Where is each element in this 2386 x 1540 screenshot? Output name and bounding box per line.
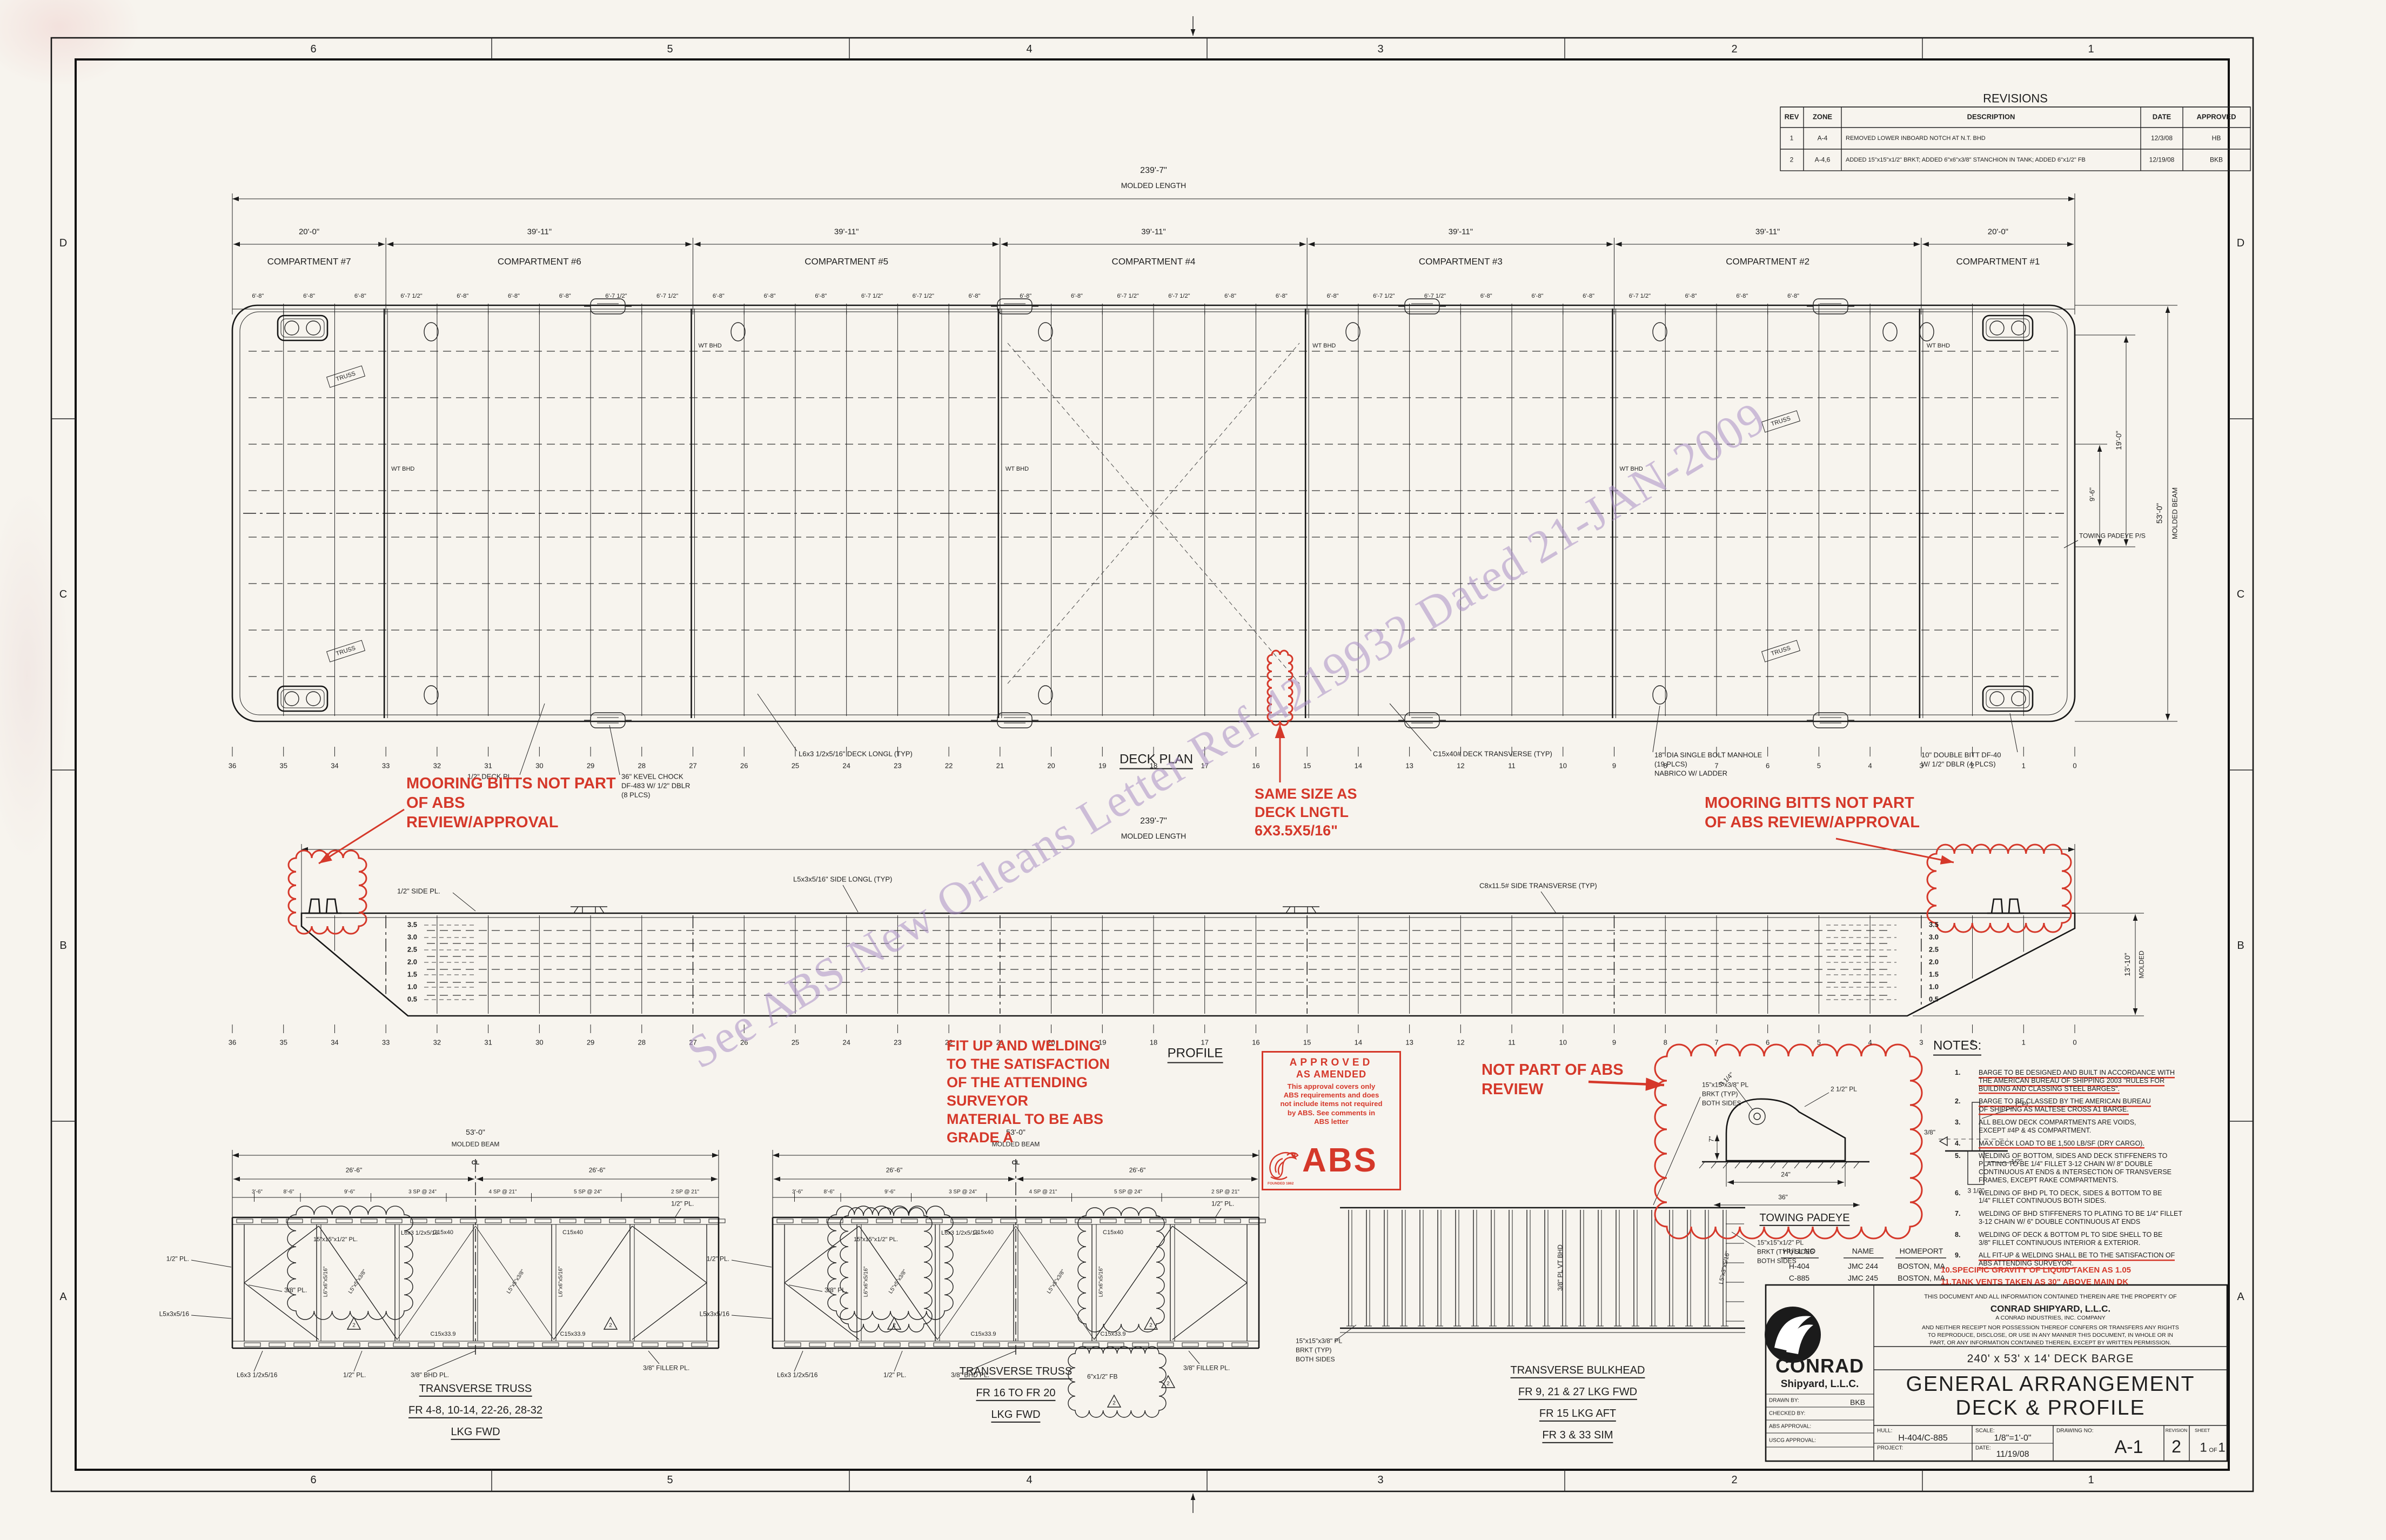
draft-mark-right: 0.5 (1929, 996, 1939, 1004)
profile-frame-number: 29 (587, 1039, 594, 1047)
truss-spacing-dim: 5 SP @ 24" (574, 1189, 602, 1195)
frame-spacing-dim: 6'-8" (1787, 293, 1799, 299)
titleblock-title-line1: GENERAL ARRANGEMENT (1906, 1372, 2195, 1396)
compartment-name: COMPARTMENT #2 (1726, 256, 1809, 266)
truss-filler-pl-label: 3/8" FILLER PL. (643, 1364, 689, 1371)
zone-number-bottom: 2 (1731, 1474, 1737, 1486)
wt-bhd-label: WT BHD (391, 466, 414, 472)
bulkhead-bracket-note-right: 15"x15"x1/2" PL (1757, 1239, 1804, 1246)
draft-mark-right: 3.5 (1929, 921, 1939, 929)
profile-frame-number: 26 (740, 1039, 748, 1047)
profile-frame-number: 6 (1766, 1039, 1770, 1047)
bulkhead-bracket-note-top: BOTH SIDES (1702, 1100, 1741, 1107)
frame-spacing-dim: 6'-8" (1327, 293, 1339, 299)
field-sheet-of: OF (2209, 1447, 2217, 1454)
frame-spacing-dim: 6'-8" (815, 293, 827, 299)
ann-mooring-left-line: MOORING BITTS NOT PART (406, 774, 616, 793)
annotation-fit-up-welding: FIT UP AND WELDINGTO THE SATISFACTIONOF … (947, 1036, 1110, 1147)
compartment-dim: 20'-0" (1988, 228, 2008, 237)
truss-top-chord-label: C15x40 (1103, 1229, 1123, 1236)
note-number: 2. (1955, 1097, 1960, 1105)
truss-spacing-dim: 5 SP @ 24" (1114, 1189, 1142, 1195)
truss-diagonal-label: L5"x5"x3/8" (1046, 1269, 1067, 1295)
truss-cl: CL (472, 1160, 480, 1166)
plan-dim-9-6: 9'-6" (2089, 487, 2097, 501)
plan-length-label: MOLDED LENGTH (1121, 182, 1187, 190)
truss-bottom-longl-label: L6x3 1/2x5/16 (777, 1371, 817, 1378)
truss-spacing-dim: 9'-6" (884, 1189, 895, 1195)
bulkhead-caption: FR 9, 21 & 27 LKG FWD (1518, 1386, 1637, 1400)
revision-zone: A-4,6 (1815, 156, 1831, 163)
frame-spacing-dim: 6'-8" (1071, 293, 1083, 299)
compartment-dim: 39'-11" (1141, 228, 1165, 237)
hull-table-header: NAME (1852, 1247, 1874, 1256)
zone-number-top: 1 (2088, 43, 2094, 55)
profile-frame-number: 4 (1868, 1039, 1872, 1047)
plan-dim-19: 19'-0" (2115, 431, 2123, 450)
field-checked-by-label: CHECKED BY: (1769, 1410, 1805, 1416)
padeye-dim-24: 24" (1781, 1171, 1791, 1178)
field-abs-approval-label: ABS APPROVAL: (1769, 1423, 1811, 1429)
draft-mark-right: 1.5 (1929, 971, 1939, 979)
zone-letter-left: D (59, 237, 67, 249)
revision-description: ADDED 15"x15"x1/2" BRKT; ADDED 6"x6"x3/8… (1846, 157, 2086, 163)
truss-longl-label: L6x3 1/2x5/16 (941, 1230, 978, 1236)
truss-label: TRUSS (335, 370, 356, 383)
profile-frame-number: 15 (1303, 1039, 1311, 1047)
note-line: WELDING OF DECK & BOTTOM PL TO SIDE SHEL… (1979, 1231, 2162, 1239)
revision-approved: HB (2212, 135, 2221, 142)
note-line: BARGE TO BE DESIGNED AND BUILT IN ACCORD… (1979, 1069, 2175, 1077)
plan-frame-number: 26 (740, 762, 748, 771)
towing-padeye-ps-label: TOWING PADEYE P/S (2079, 532, 2146, 539)
revision-triangle: 2 (609, 1322, 612, 1328)
profile-frame-number: 32 (433, 1039, 441, 1047)
frame-spacing-dim: 6'-7 1/2" (1424, 293, 1446, 299)
profile-frame-number: 28 (638, 1039, 646, 1047)
compartment-dim: 39'-11" (1449, 228, 1473, 237)
truss-gusset-label: 3/8" PL. (825, 1287, 847, 1294)
titleblock-title-line2: DECK & PROFILE (1956, 1396, 2146, 1420)
frame-spacing-dim: 6'-8" (1276, 293, 1288, 299)
note-line: PLATING TO BE 1/4" FILLET 3-12 CHAIN W/ … (1979, 1160, 2153, 1168)
truss-spacing-dim: 2 SP @ 21" (1211, 1189, 1239, 1195)
wt-bhd-label: WT BHD (1006, 466, 1029, 472)
field-scale-value: 1/8"=1'-0" (1994, 1434, 2031, 1443)
profile-length-label: MOLDED LENGTH (1121, 832, 1187, 841)
truss-vertical-label: L6"x6"x5/16" (558, 1267, 564, 1297)
callout-kevel-chock: DF-483 W/ 1/2" DBLR (621, 782, 690, 791)
stamp-as-amended: AS AMENDED (1263, 1069, 1399, 1080)
frame-spacing-dim: 6'-8" (559, 293, 571, 299)
note-number: 9. (1955, 1251, 1960, 1259)
note-line: EXCEPT #4P & 4S COMPARTMENT. (1979, 1127, 2091, 1135)
truss-longl-label: L6x3 1/2x5/16 (401, 1230, 438, 1236)
callout-deck-longl: L6x3 1/2x5/16" DECK LONGL (TYP) (799, 751, 913, 759)
truss-label: TRUSS (335, 645, 356, 657)
compartment-name: COMPARTMENT #5 (805, 256, 888, 266)
truss-side-pl-label: 1/2" PL. (707, 1255, 729, 1262)
note-red-line: 10.SPECIFIC GRAVITY OF LIQUID TAKEN AS 1… (1941, 1267, 2131, 1275)
zone-letter-right: A (2237, 1291, 2244, 1303)
plan-frame-number: 34 (331, 762, 338, 771)
zone-letter-left: C (59, 588, 67, 600)
truss-top-pl-label: 1/2" PL. (1211, 1200, 1234, 1207)
plan-frame-number: 16 (1252, 762, 1259, 771)
frame-spacing-dim: 6'-8" (354, 293, 366, 299)
frame-spacing-dim: 6'-8" (1480, 293, 1492, 299)
abs-logo-word: ABS (1302, 1143, 1378, 1178)
ann-mooring-right-line: MOORING BITTS NOT PART (1705, 793, 1920, 813)
titleblock-property-line: A CONRAD INDUSTRIES, INC. COMPANY (1995, 1315, 2105, 1322)
stamp-approved: APPROVED (1263, 1057, 1399, 1069)
zone-letter-right: D (2237, 237, 2244, 249)
truss-spacing-dim: 3 SP @ 24" (949, 1189, 977, 1195)
stamp-body-line: by ABS. See comments in (1263, 1109, 1399, 1117)
abs-approval-stamp: APPROVED AS AMENDED This approval covers… (1262, 1051, 1401, 1190)
revision-triangle: 2 (352, 1322, 356, 1328)
abs-founded-text: FOUNDED 1862 (1268, 1182, 1293, 1186)
plan-frame-number: 14 (1355, 762, 1362, 771)
field-date-label: DATE: (1975, 1445, 1991, 1451)
profile-frame-number: 18 (1150, 1039, 1157, 1047)
truss-spacing-dim: 3'-6" (252, 1189, 263, 1195)
revision-description: REMOVED LOWER INBOARD NOTCH AT N.T. BHD (1846, 135, 1986, 142)
bulkhead-caption: TRANSVERSE BULKHEAD (1511, 1364, 1645, 1378)
truss-vertical-label: L6"x6"x5/16" (323, 1267, 329, 1297)
truss-gusset-label: 3/8" PL. (284, 1287, 307, 1294)
plan-frame-number: 22 (945, 762, 953, 771)
zone-number-bottom: 5 (667, 1474, 673, 1486)
truss-caption: FR 4-8, 10-14, 22-26, 28-32 (408, 1404, 542, 1418)
profile-frame-number: 16 (1252, 1039, 1259, 1047)
field-drawn-by-value: BKB (1850, 1398, 1865, 1407)
callout-side-transverse: C8x11.5# SIDE TRANSVERSE (TYP) (1479, 882, 1597, 890)
zone-letter-right: C (2237, 588, 2244, 600)
note-number: 6. (1955, 1189, 1960, 1197)
truss-bottom-chord-label: C15x33.9 (430, 1331, 455, 1337)
draft-mark-left: 1.0 (407, 983, 417, 992)
annotation-mooring-bitts-left: MOORING BITTS NOT PARTOF ABSREVIEW/APPRO… (406, 774, 616, 832)
deck-plan-title: DECK PLAN (1120, 753, 1193, 769)
ann-mooring-right-line: OF ABS REVIEW/APPROVAL (1705, 813, 1920, 832)
field-scale-label: SCALE: (1975, 1428, 1995, 1434)
plan-frame-number: 19 (1098, 762, 1106, 771)
truss-half-dim: 26'-6" (589, 1167, 606, 1174)
truss-beam-dim: 53'-0" (466, 1128, 485, 1137)
truss-diagonal-label: L5"x5"x3/8" (888, 1269, 908, 1295)
frame-spacing-dim: 6'-7 1/2" (605, 293, 627, 299)
truss-bhd-pl-label: 3/8" BHD PL. (411, 1371, 449, 1378)
plan-frame-number: 30 (535, 762, 543, 771)
plan-frame-number: 0 (2073, 762, 2076, 771)
plan-frame-number: 5 (1817, 762, 1821, 771)
frame-spacing-dim: 6'-8" (252, 293, 264, 299)
zone-number-top: 4 (1026, 43, 1032, 55)
conrad-logo-name: CONRAD (1775, 1355, 1864, 1377)
field-hull-value: H-404/C-885 (1898, 1434, 1948, 1443)
zone-number-bottom: 6 (310, 1474, 316, 1486)
bulkhead-bracket-note-left: BOTH SIDES (1296, 1356, 1335, 1363)
titleblock-property-line: TO REPRODUCE, DISCLOSE, OR USE IN ANY MA… (1928, 1333, 2173, 1339)
truss-side-pl-label: 1/2" PL. (166, 1255, 189, 1262)
revision-rev: 2 (1790, 156, 1794, 163)
compartment-dim: 39'-11" (527, 228, 552, 237)
note-line: THE AMERICAN BUREAU OF SHIPPING 2003 "RU… (1979, 1077, 2164, 1085)
truss-vertical-label: L6"x6"x5/16" (863, 1267, 869, 1297)
profile-frame-number: 27 (689, 1039, 696, 1047)
ann-mooring-left-line: REVIEW/APPROVAL (406, 813, 616, 832)
profile-frame-number: 34 (331, 1039, 338, 1047)
truss-caption: LKG FWD (451, 1426, 500, 1440)
profile-frame-number: 35 (279, 1039, 287, 1047)
hull-table-cell: JMC 245 (1848, 1274, 1878, 1283)
callout-kevel-chock: (8 PLCS) (621, 792, 650, 800)
callout-deck-transverse: C15x40# DECK TRANSVERSE (TYP) (1433, 751, 1552, 759)
truss-caption: LKG FWD (991, 1409, 1040, 1423)
revision-approved: BKB (2210, 156, 2223, 163)
truss-fb-label: 6"x1/2" FB (1087, 1373, 1118, 1380)
frame-spacing-dim: 6'-8" (1736, 293, 1748, 299)
plan-frame-number: 21 (996, 762, 1004, 771)
truss-label: TRUSS (1770, 415, 1791, 427)
stamp-body-line: ABS letter (1263, 1117, 1399, 1126)
plan-frame-number: 13 (1405, 762, 1413, 771)
truss-bottom-pl-label: 1/2" PL. (883, 1371, 906, 1378)
plan-frame-number: 17 (1201, 762, 1208, 771)
titleblock-property-line: THIS DOCUMENT AND ALL INFORMATION CONTAI… (1924, 1294, 2177, 1300)
truss-diagonal-label: L5"x5"x3/8" (347, 1269, 368, 1295)
plan-frame-number: 28 (638, 762, 646, 771)
plan-frame-number: 27 (689, 762, 696, 771)
wt-bhd-label: WT BHD (1927, 343, 1950, 349)
callout-side-longl: L5x3x5/16" SIDE LONGL (TYP) (793, 876, 892, 884)
frame-spacing-dim: 6'-8" (1020, 293, 1031, 299)
note-number: 7. (1955, 1210, 1960, 1217)
plan-frame-number: 12 (1457, 762, 1464, 771)
callout-double-bitt: W/ 1/2" DBLR (4 PLCS) (1921, 761, 1996, 769)
note-number: 3. (1955, 1119, 1960, 1126)
compartment-name: COMPARTMENT #4 (1112, 256, 1196, 266)
ann-fit-up-line: GRADE A (947, 1128, 1110, 1147)
field-drawn-by-label: DRAWN BY: (1769, 1397, 1799, 1403)
truss-bottom-longl-label: L6x3 1/2x5/16 (237, 1371, 277, 1378)
wt-bhd-label: WT BHD (1620, 466, 1643, 472)
plan-length-dim: 239'-7" (1140, 166, 1167, 176)
note-line: ALL FIT-UP & WELDING SHALL BE TO THE SAT… (1979, 1251, 2175, 1260)
hull-table-cell: H-404 (1789, 1262, 1809, 1271)
annotation-not-part-of-abs: NOT PART OF ABSREVIEW (1482, 1060, 1624, 1099)
profile-frame-number: 23 (894, 1039, 901, 1047)
truss-caption: TRANSVERSE TRUSS (419, 1383, 532, 1397)
zone-number-top: 3 (1377, 43, 1383, 55)
field-sheet-total: 1 (2218, 1441, 2225, 1456)
truss-spacing-dim: 3 SP @ 24" (408, 1189, 437, 1195)
compartment-name: COMPARTMENT #6 (498, 256, 581, 266)
truss-spacing-dim: 8'-6" (824, 1189, 835, 1195)
hull-table-cell: C-885 (1789, 1274, 1809, 1283)
revision-triangle: 2 (1149, 1322, 1152, 1328)
note-line: WELDING OF BHD STIFFENERS TO PLATING TO … (1979, 1210, 2182, 1218)
ann-mooring-left-line: OF ABS (406, 793, 616, 813)
profile-frame-number: 33 (382, 1039, 390, 1047)
revision-triangle: 2 (893, 1322, 896, 1328)
hull-table-cell: JMC 244 (1848, 1262, 1878, 1271)
frame-spacing-dim: 6'-7 1/2" (1629, 293, 1651, 299)
frame-spacing-dim: 6'-7 1/2" (656, 293, 678, 299)
frame-spacing-dim: 6'-7 1/2" (861, 293, 883, 299)
truss-bottom-chord-label: C15x33.9 (970, 1331, 996, 1337)
plan-frame-number: 32 (433, 762, 441, 771)
truss-bottom-pl-label: 1/2" PL. (343, 1371, 366, 1378)
bulkhead-caption: FR 15 LKG AFT (1539, 1408, 1616, 1422)
profile-frame-number: 24 (842, 1039, 850, 1047)
frame-spacing-dim: 6'-8" (508, 293, 520, 299)
frame-spacing-dim: 6'-8" (457, 293, 468, 299)
zone-number-top: 6 (310, 43, 316, 55)
draft-mark-left: 2.5 (407, 946, 417, 954)
truss-top-pl-label: 1/2" PL. (671, 1200, 694, 1207)
truss-bottom-chord-label: C15x33.9 (1100, 1331, 1125, 1337)
zone-number-bottom: 4 (1026, 1474, 1032, 1486)
plan-frame-number: 6 (1766, 762, 1770, 771)
truss-spacing-dim: 4 SP @ 21" (489, 1189, 517, 1195)
compartment-dim: 39'-11" (834, 228, 859, 237)
truss-beam-label: MOLDED BEAM (452, 1141, 500, 1148)
annotation-same-size: SAME SIZE ASDECK LNGTL6X3.5X5/16" (1255, 785, 1357, 840)
profile-frame-number: 36 (229, 1039, 236, 1047)
field-project-label: PROJECT: (1877, 1445, 1903, 1451)
profile-frame-number: 30 (535, 1039, 543, 1047)
profile-frame-number: 31 (484, 1039, 492, 1047)
callout-double-bitt: 10" DOUBLE BITT DF-40 (1921, 752, 2001, 760)
revision-triangle: 2 (1112, 1400, 1116, 1406)
draft-mark-left: 0.5 (407, 996, 417, 1004)
ann-fit-up-line: TO THE SATISFACTION (947, 1055, 1110, 1073)
bulkhead-bracket-note-left: 15"x15"x3/8" PL (1296, 1337, 1342, 1344)
profile-frame-number: 5 (1817, 1039, 1821, 1047)
titleblock-property-line: AND NEITHER RECEIPT NOR POSSESSION THERE… (1922, 1325, 2179, 1331)
compartment-dim: 39'-11" (1755, 228, 1780, 237)
field-drawing-no-label: DRAWING NO: (2056, 1428, 2094, 1434)
ann-same-size-line: 6X3.5X5/16" (1255, 821, 1357, 840)
zone-letter-right: B (2237, 940, 2244, 952)
field-revision-value: 2 (2171, 1437, 2181, 1457)
field-sheet-label: SHEET (2195, 1428, 2210, 1434)
profile-depth-label: MOLDED (2138, 950, 2145, 978)
stamp-body-line: ABS requirements and does (1263, 1091, 1399, 1100)
truss-top-chord-label: C15x40 (562, 1229, 583, 1236)
note-line: OF SHIPPING AS MALTESE CROSS A1 BARGE. (1979, 1106, 2129, 1114)
note-line: BUILDING AND CLASSING STEEL BARGES". (1979, 1085, 2120, 1093)
bulkhead-caption: FR 3 & 33 SIM (1542, 1429, 1613, 1443)
conrad-logo-sub: Shipyard, L.L.C. (1781, 1378, 1859, 1390)
truss-half-dim: 26'-6" (1129, 1167, 1146, 1174)
profile-length-dim: 239'-7" (1140, 816, 1167, 826)
truss-spacing-dim: 3'-6" (792, 1189, 803, 1195)
plan-frame-number: 36 (229, 762, 236, 771)
ann-not-part-line: REVIEW (1482, 1080, 1624, 1099)
profile-frame-number: 8 (1664, 1039, 1667, 1047)
plan-frame-number: 31 (484, 762, 492, 771)
profile-frame-number: 14 (1355, 1039, 1362, 1047)
zone-number-top: 2 (1731, 43, 1737, 55)
revisions-title: REVISIONS (1983, 92, 2048, 106)
revision-date: 12/19/08 (2149, 156, 2175, 163)
ann-fit-up-line: MATERIAL TO BE ABS (947, 1110, 1110, 1128)
plan-frame-number: 23 (894, 762, 901, 771)
plan-frame-number: 25 (792, 762, 799, 771)
truss-bottom-chord-label: C15x33.9 (560, 1331, 585, 1337)
ann-fit-up-line: OF THE ATTENDING (947, 1073, 1110, 1092)
profile-frame-number: 25 (792, 1039, 799, 1047)
plan-beam-dim: 53'-0" (2156, 503, 2165, 524)
frame-spacing-dim: 6'-7 1/2" (1373, 293, 1395, 299)
truss-spacing-dim: 2 SP @ 21" (671, 1189, 699, 1195)
stamp-body-text: This approval covers onlyABS requirement… (1263, 1082, 1399, 1126)
callout-side-pl: 1/2" SIDE PL. (397, 888, 440, 896)
note-number: 8. (1955, 1231, 1960, 1238)
truss-label: TRUSS (1770, 645, 1791, 657)
note-line: CONTINUOUS AT ENDS & INTERSECTION OF TRA… (1979, 1168, 2171, 1176)
abs-logo-row: ABS FOUNDED 1862 (1263, 1143, 1399, 1186)
titleblock-property-line: PART, OR ANY INFORMATION CONTAINED THERE… (1930, 1340, 2171, 1347)
truss-spacing-dim: 4 SP @ 21" (1029, 1189, 1057, 1195)
wt-bhd-label: WT BHD (1312, 343, 1336, 349)
frame-spacing-dim: 6'-8" (303, 293, 315, 299)
truss-filler-pl-label: 3/8" FILLER PL. (1183, 1364, 1230, 1371)
bulkhead-stiffener-label: L5"x3"x5/16" (1718, 1250, 1731, 1285)
frame-spacing-dim: 6'-8" (1224, 293, 1236, 299)
revisions-header: REV (1785, 113, 1799, 122)
truss-l5-label: L5x3x5/16 (159, 1310, 189, 1317)
zone-number-bottom: 1 (2088, 1474, 2094, 1486)
plan-frame-number: 9 (1612, 762, 1616, 771)
truss-spacing-dim: 9'-6" (344, 1189, 355, 1195)
field-revision-label: REVISION (2166, 1428, 2188, 1434)
titleblock-property-line: CONRAD SHIPYARD, L.L.C. (1990, 1303, 2110, 1314)
profile-frame-number: 3 (1919, 1039, 1923, 1047)
compartment-name: COMPARTMENT #1 (1956, 256, 2040, 266)
field-hull-label: HULL: (1877, 1428, 1892, 1434)
padeye-section-38: 3/8" (1924, 1129, 1935, 1136)
profile-frame-number: 7 (1714, 1039, 1718, 1047)
hull-table-header: HOMEPORT (1900, 1247, 1943, 1256)
field-uscg-approval-label: USCG APPROVAL: (1769, 1437, 1816, 1443)
note-line: 3/8" FILLET CONTINUOUS INTERIOR & EXTERI… (1979, 1239, 2140, 1247)
note-line: WELDING OF BOTTOM, SIDES AND DECK STIFFE… (1979, 1152, 2167, 1160)
annotation-mooring-bitts-right: MOORING BITTS NOT PARTOF ABS REVIEW/APPR… (1705, 793, 1920, 832)
abs-eagle-icon (1265, 1143, 1303, 1186)
profile-frame-number: 1 (2022, 1039, 2026, 1047)
truss-l5-label: L5x3x5/16 (700, 1310, 729, 1317)
truss-vertical-label: L6"x6"x5/16" (1098, 1267, 1104, 1297)
zone-number-top: 5 (667, 43, 673, 55)
compartment-dim: 20'-0" (299, 228, 319, 237)
text-labels-layer: 654321654321DCBADCBAREVISIONSREVZONEDESC… (0, 0, 2386, 1540)
zone-letter-left: A (59, 1291, 66, 1303)
compartment-name: COMPARTMENT #7 (267, 256, 351, 266)
towing-padeye-caption: TOWING PADEYE (1759, 1212, 1849, 1226)
draft-mark-right: 3.0 (1929, 934, 1939, 942)
note-line: FRAMES, EXCEPT RAKE COMPARTMENTS. (1979, 1176, 2118, 1184)
truss-caption: TRANSVERSE TRUSS (960, 1365, 1073, 1380)
scanned-engineering-drawing: 654321654321DCBADCBAREVISIONSREVZONEDESC… (0, 0, 2386, 1540)
padeye-pl-label: 2 1/2" PL (1831, 1086, 1857, 1093)
note-line: BARGE TO BE CLASSED BY THE AMERICAN BURE… (1979, 1097, 2151, 1106)
field-drawing-no-value: A-1 (2115, 1437, 2143, 1457)
truss-spacing-dim: 8'-6" (284, 1189, 294, 1195)
